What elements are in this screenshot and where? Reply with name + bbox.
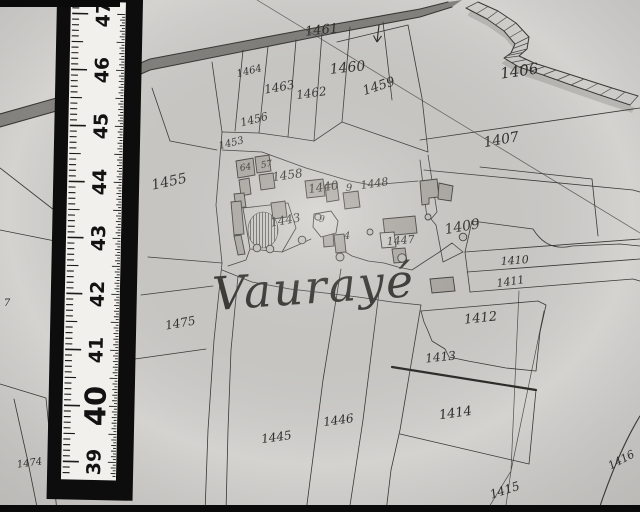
photo-frame: 1461146014591406140714641463146214561455… <box>0 0 640 512</box>
parcel-label: 64 <box>239 162 252 174</box>
ruler-number: 43 <box>88 225 111 252</box>
ruler-number: 44 <box>89 169 112 196</box>
ruler-number: 45 <box>90 113 113 140</box>
ruler-number: 41 <box>85 337 108 364</box>
parcel-label: 9 <box>346 183 353 194</box>
parcel-label: 57 <box>260 159 273 171</box>
cadastral-map: 1461146014591406140714641463146214561455… <box>0 0 640 512</box>
ruler: 474645444342414039 <box>47 0 144 501</box>
parcel-label: 1410 <box>500 253 529 268</box>
parcel-label: 1447 <box>386 233 415 248</box>
parcel-label: 9 <box>319 215 325 225</box>
ruler-number: 40 <box>78 385 113 426</box>
ruler-number: 42 <box>87 281 110 308</box>
ruler-number: 39 <box>83 449 106 476</box>
parcel-label: 4 <box>343 231 350 242</box>
ruler-number: 46 <box>91 57 114 84</box>
photo-edge-top <box>0 0 120 7</box>
parcel-label: 7 <box>4 298 11 309</box>
photo-edge-bottom <box>0 505 640 512</box>
